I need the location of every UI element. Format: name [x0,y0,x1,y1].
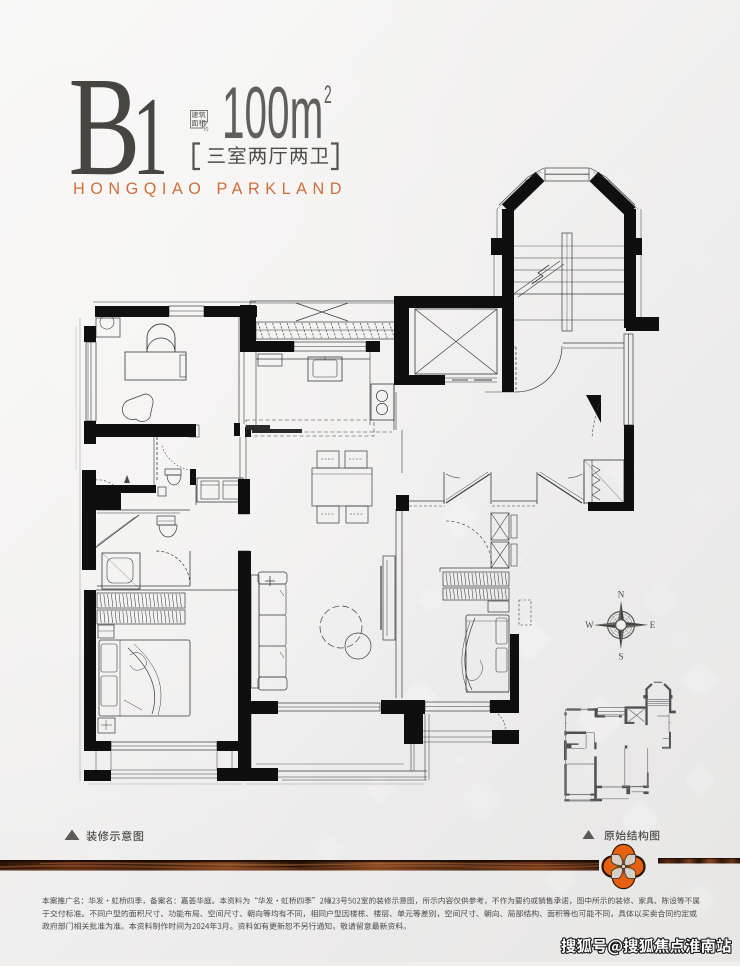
svg-text:E: E [650,620,656,630]
svg-text:S: S [618,652,623,662]
svg-text:100m: 100m [222,72,323,154]
svg-text:2: 2 [324,82,332,109]
svg-text:W: W [585,620,594,630]
svg-text:N: N [618,590,625,600]
svg-text:HONGQIAO PARKLAND: HONGQIAO PARKLAND [73,180,347,198]
